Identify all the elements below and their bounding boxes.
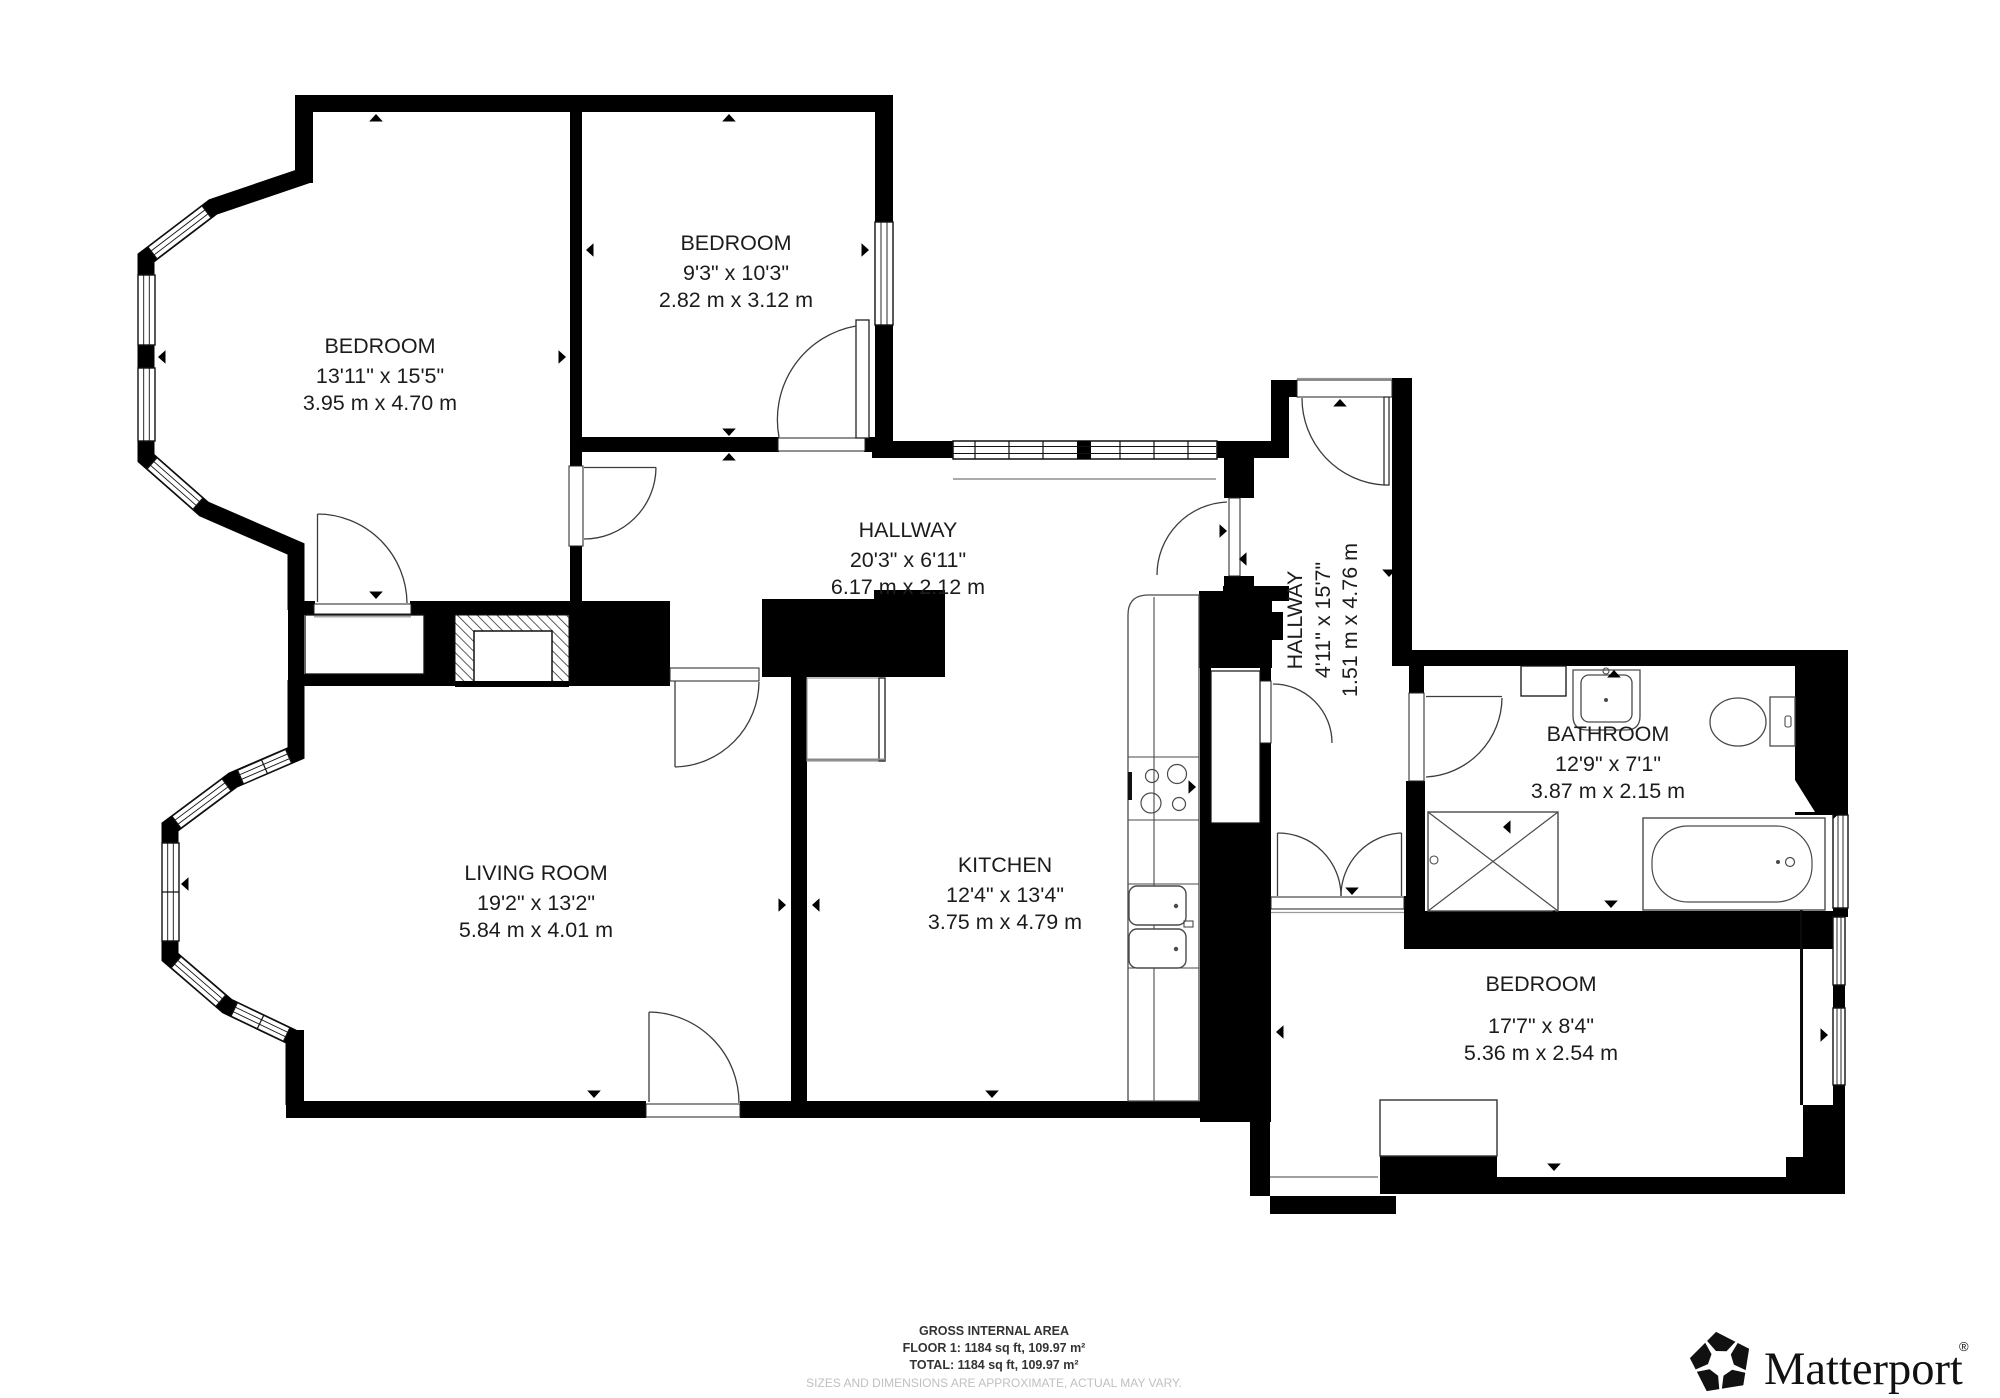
svg-text:BATHROOM: BATHROOM xyxy=(1547,722,1670,746)
svg-text:9'3" x 10'3": 9'3" x 10'3" xyxy=(683,261,789,285)
svg-text:KITCHEN: KITCHEN xyxy=(958,853,1052,877)
svg-text:20'3" x 6'11": 20'3" x 6'11" xyxy=(850,548,966,572)
svg-text:12'9" x 7'1": 12'9" x 7'1" xyxy=(1555,752,1661,776)
svg-text:5.36 m x 2.54 m: 5.36 m x 2.54 m xyxy=(1464,1041,1618,1065)
svg-text:SIZES AND DIMENSIONS ARE APPRO: SIZES AND DIMENSIONS ARE APPROXIMATE, AC… xyxy=(806,1376,1182,1390)
svg-text:12'4" x 13'4": 12'4" x 13'4" xyxy=(946,883,1064,907)
svg-text:HALLWAY: HALLWAY xyxy=(859,518,958,542)
svg-text:®: ® xyxy=(1959,1339,1969,1354)
svg-text:TOTAL: 1184 sq ft, 109.97 m²: TOTAL: 1184 sq ft, 109.97 m² xyxy=(909,1358,1078,1372)
svg-text:17'7" x 8'4": 17'7" x 8'4" xyxy=(1488,1014,1594,1038)
svg-text:4'11" x 15'7": 4'11" x 15'7" xyxy=(1311,562,1335,678)
svg-text:BEDROOM: BEDROOM xyxy=(680,231,791,255)
svg-text:3.75 m x 4.79 m: 3.75 m x 4.79 m xyxy=(928,910,1082,934)
svg-text:HALLWAY: HALLWAY xyxy=(1283,571,1307,670)
svg-text:3.87 m x 2.15 m: 3.87 m x 2.15 m xyxy=(1531,779,1685,803)
svg-text:3.95 m x 4.70 m: 3.95 m x 4.70 m xyxy=(303,391,457,415)
svg-text:19'2" x 13'2": 19'2" x 13'2" xyxy=(477,891,595,915)
svg-text:GROSS INTERNAL AREA: GROSS INTERNAL AREA xyxy=(919,1324,1069,1338)
svg-text:BEDROOM: BEDROOM xyxy=(324,334,435,358)
svg-text:2.82 m x 3.12 m: 2.82 m x 3.12 m xyxy=(659,288,813,312)
svg-text:6.17 m x 2.12 m: 6.17 m x 2.12 m xyxy=(831,575,985,599)
svg-text:BEDROOM: BEDROOM xyxy=(1485,972,1596,996)
svg-text:LIVING ROOM: LIVING ROOM xyxy=(464,861,607,885)
svg-text:FLOOR 1: 1184 sq ft, 109.97 m²: FLOOR 1: 1184 sq ft, 109.97 m² xyxy=(903,1341,1086,1355)
svg-text:1.51 m x 4.76 m: 1.51 m x 4.76 m xyxy=(1338,543,1362,697)
svg-text:Matterport: Matterport xyxy=(1764,1344,1963,1395)
svg-text:13'11" x 15'5": 13'11" x 15'5" xyxy=(316,364,444,388)
svg-text:5.84 m x 4.01 m: 5.84 m x 4.01 m xyxy=(459,918,613,942)
